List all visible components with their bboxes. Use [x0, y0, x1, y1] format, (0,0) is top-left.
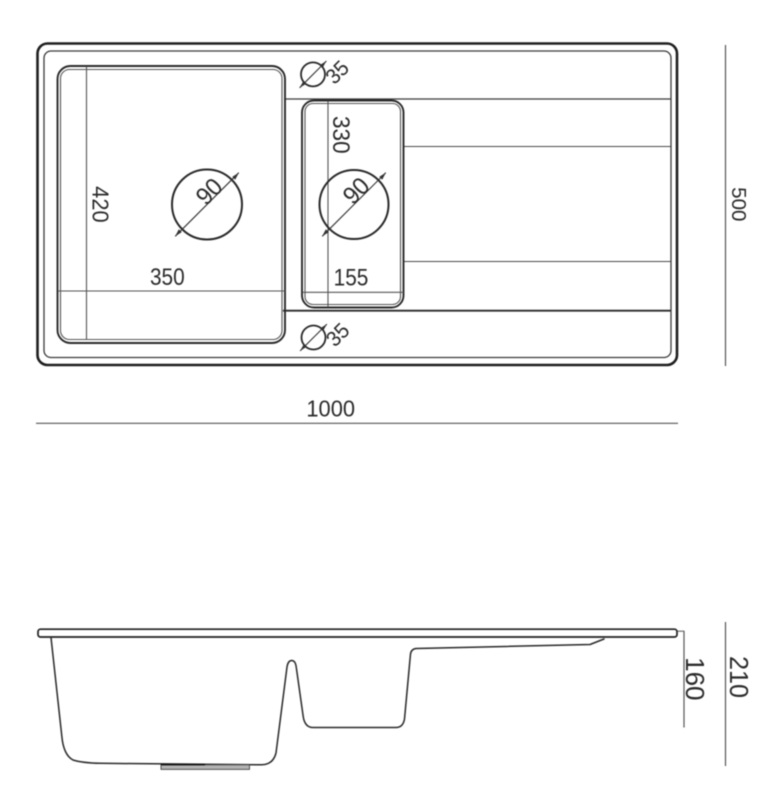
svg-text:420: 420: [87, 186, 113, 222]
svg-text:500: 500: [727, 187, 749, 221]
svg-text:350: 350: [150, 263, 185, 291]
svg-text:330: 330: [328, 116, 355, 154]
svg-text:210: 210: [724, 656, 752, 698]
svg-text:160: 160: [680, 657, 710, 700]
svg-text:155: 155: [334, 263, 369, 291]
svg-text:1000: 1000: [306, 395, 355, 422]
